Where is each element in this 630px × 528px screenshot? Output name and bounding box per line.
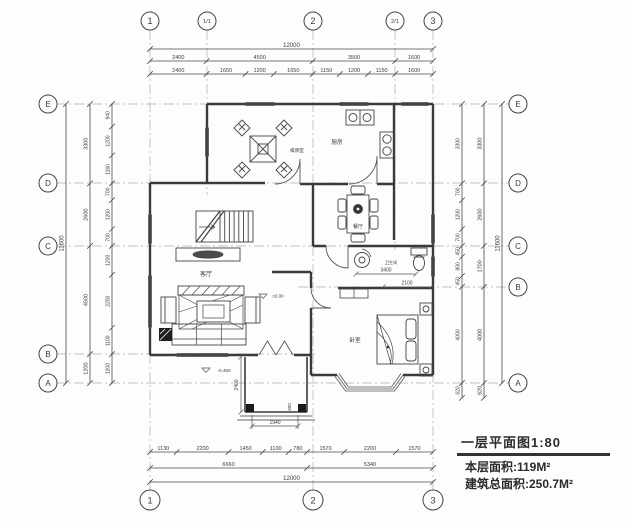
total-area-text: 建筑总面积:250.7M²: [457, 476, 610, 493]
dim-label: 11600: [60, 235, 66, 252]
dim-label: 4500: [254, 55, 266, 61]
dim-label: 700: [106, 233, 112, 242]
dim-label: 1570: [319, 446, 331, 452]
level-entry: ±0.00: [272, 294, 284, 299]
drawing-title: 一层平面图1:80: [457, 432, 610, 451]
dim-label: 620: [456, 386, 462, 395]
dim-label: 1200: [106, 135, 112, 146]
axis-label: E: [515, 100, 520, 109]
dim-label: 1450: [240, 446, 252, 452]
axis-label: 2/1: [391, 19, 399, 25]
axis-label: 3: [430, 16, 435, 26]
dim-label: 1150: [320, 68, 332, 74]
dim-chain-right-major: 3300260017004000620: [478, 101, 487, 401]
wash-basin: [355, 253, 370, 268]
dim-chain-top-major: 2400450035001600: [147, 55, 436, 64]
dim-bath-depth: 2100: [401, 281, 412, 287]
dim-label: 2600: [478, 209, 484, 221]
axis-label: E: [45, 100, 50, 109]
dim-label: 1130: [157, 446, 169, 452]
chess-room-door: [275, 159, 300, 184]
floor-area-text: 本层面积:119M²: [457, 459, 610, 476]
axis-label: 2: [310, 496, 315, 507]
dim-label: 1650: [287, 68, 299, 74]
dim-label: 1200: [456, 209, 462, 220]
dim-chain-bottom-major: 66605340: [147, 462, 436, 471]
entry-porch: [237, 357, 315, 420]
level-outdoor: -0.450: [217, 368, 230, 373]
axis-label: 3: [430, 496, 435, 507]
axis-label: A: [45, 379, 51, 388]
title-block: 一层平面图1:80 本层面积:119M² 建筑总面积:250.7M²: [457, 432, 610, 494]
dim-chain-bottom-total: 12000: [147, 476, 436, 485]
dim-label: 12000: [283, 43, 300, 49]
dim-label: 1650: [220, 68, 232, 74]
nightstand: [420, 303, 432, 315]
axis-label: D: [515, 179, 521, 188]
dim-label: 450: [456, 247, 462, 256]
room-label-dining: 餐厅: [353, 223, 363, 230]
mahjong-table: [234, 120, 292, 178]
dim-chain-top-minor: 24001650120016501150120011501600: [147, 68, 436, 77]
axis-label: 2: [310, 16, 315, 26]
title-underline: [457, 453, 610, 456]
dim-label: 2400: [172, 68, 184, 74]
axis-label: B: [515, 283, 520, 292]
tv: [193, 251, 223, 258]
axis-label: B: [45, 350, 50, 359]
staircase: [196, 211, 253, 242]
dim-label: 1150: [376, 68, 388, 74]
toilet: [411, 248, 427, 255]
axis-label: A: [515, 379, 521, 388]
dim-chain-right-minor: 330070012007004508004504000620: [456, 101, 465, 401]
dim-porch-width: 1940: [269, 420, 280, 426]
axis-label: 1: [147, 16, 152, 26]
dim-label: 1160: [106, 164, 112, 175]
dim-label: 4000: [478, 329, 484, 341]
dim-label: 1570: [408, 446, 420, 452]
bed: [377, 315, 418, 364]
porch-column: [298, 404, 306, 412]
dim-label: 780: [293, 446, 302, 452]
dim-label: 2600: [84, 209, 90, 221]
walls: [150, 104, 433, 375]
dim-label: 11600: [496, 235, 502, 252]
room-label-kitchen: 厨房: [331, 138, 343, 146]
dim-label: 5340: [364, 462, 376, 468]
armchair: [245, 297, 260, 323]
dim-label: 1200: [106, 209, 112, 220]
dim-chain-top-total: 12000: [147, 43, 436, 52]
dim-chain-left-minor: 9401200116070012007001200220011001200: [106, 101, 115, 386]
dim-label: 12000: [283, 476, 300, 482]
dim-chain-right-total: 11600: [496, 101, 505, 386]
bedroom-furniture: [340, 289, 432, 376]
dim-label: 1600: [408, 68, 420, 74]
dim-label: 700: [106, 187, 112, 196]
dim-label: 450: [456, 277, 462, 286]
dim-label: 1100: [270, 446, 282, 452]
dim-label: 940: [106, 111, 112, 120]
bay-window: [335, 374, 405, 392]
level-marker-icon: [202, 368, 210, 373]
pillow: [406, 319, 416, 339]
dim-label: 2200: [364, 446, 376, 452]
tv-console: [176, 248, 240, 261]
dim-label: 2400: [172, 55, 184, 61]
dim-label: 2200: [106, 295, 112, 306]
bathroom-door: [326, 246, 348, 268]
stove: [380, 132, 394, 158]
dim-label: 2200: [196, 446, 208, 452]
dim-label: 1100: [106, 335, 112, 346]
room-label-bath: 卫生间: [385, 259, 398, 266]
coffee-table: [197, 301, 230, 322]
dim-label: 1600: [408, 55, 420, 61]
room-label-bedroom: 卧室: [349, 336, 361, 344]
dim-label: 4000: [456, 329, 462, 340]
axis-label: C: [45, 242, 51, 251]
dim-porch-height: 2400: [234, 379, 240, 390]
dining-table: [338, 186, 378, 242]
dim-label: 1200: [106, 363, 112, 374]
dim-label: 1200: [84, 362, 90, 374]
dim-label: 6660: [222, 462, 234, 468]
dim-label: 4500: [84, 294, 90, 306]
dim-chain-bottom-minor: 1130220014501100780157022001570: [147, 446, 436, 455]
room-label-living: 客厅: [200, 270, 212, 278]
porch-column: [246, 404, 254, 412]
axis-bubble-labels: 1 1/1 2 2/1 3 1 2 3 E D C B A E D C B A: [45, 16, 521, 506]
entry-double-door: [259, 341, 293, 355]
dim-chain-left-total: 11600: [60, 101, 69, 386]
dim-label: 3500: [348, 55, 360, 61]
room-label-chess: 棋牌室: [290, 147, 304, 154]
bedroom-door: [311, 288, 331, 308]
dim-label: 700: [456, 187, 462, 196]
axis-label: C: [515, 242, 521, 251]
dim-label: 1200: [348, 68, 360, 74]
dim-label: 800: [456, 262, 462, 271]
dim-label: 620: [478, 386, 484, 395]
dim-label: 1200: [106, 255, 112, 266]
sofa-set: [159, 286, 260, 345]
dim-bath-width: 3400: [380, 268, 391, 274]
dim-label: 3300: [456, 138, 462, 149]
dim-step: 300: [287, 403, 292, 411]
dim-label: 3300: [478, 138, 484, 150]
dim-label: 3300: [84, 138, 90, 150]
floor-plan-page: 棋牌室 厨房 餐厅 客厅 卫生间 卧室 3400 2100 2400 1940 …: [0, 0, 630, 528]
armchair: [161, 297, 176, 323]
axis-label: 1/1: [203, 19, 211, 25]
interior-dims: 3400 2100 2400 1940 300 ±0.00 -0.450: [202, 268, 434, 430]
dim-label: 1700: [478, 260, 484, 272]
dim-label: 700: [456, 233, 462, 242]
pillow: [406, 341, 416, 361]
axis-grid-lines: [56, 30, 512, 490]
dim-chain-left-major: 3300260045001200: [84, 101, 93, 386]
kitchen-door: [349, 156, 377, 184]
dim-label: 1200: [254, 68, 266, 74]
kitchen-fixtures: [346, 110, 394, 158]
blanket: [377, 315, 393, 364]
axis-label: 1: [147, 496, 152, 507]
axis-label: D: [45, 179, 51, 188]
